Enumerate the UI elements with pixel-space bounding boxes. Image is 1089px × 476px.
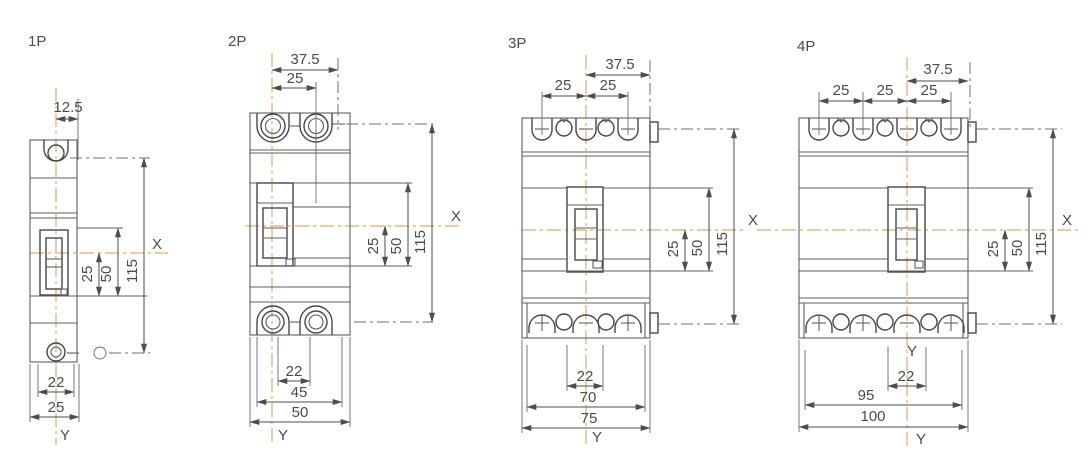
toggle-handle (46, 238, 62, 289)
bottom-terminal-hole-right (305, 311, 327, 333)
y-axis-label: Y (278, 427, 288, 444)
bottom-phase-barrier-hole-1 (833, 314, 849, 330)
dimension-pitch-25-3: 25 (907, 82, 951, 135)
dimension-height-115: 115 (124, 158, 144, 353)
dimension-mount-37-5: 37.5 (586, 56, 650, 75)
dim-50: 50 (1009, 240, 1026, 257)
dim-115: 115 (714, 232, 731, 256)
dim-25a: 25 (833, 82, 850, 99)
x-axis-label: X (152, 236, 162, 253)
pole-label-1p: 1P (28, 33, 46, 50)
dim-25a: 25 (555, 77, 572, 94)
bottom-phase-barrier-hole-1 (556, 314, 572, 330)
dimension-span-95: 95 (805, 350, 962, 410)
dimension-height-25: 25 (365, 226, 385, 266)
side-tab-bottom (968, 313, 976, 333)
y-axis-label: Y (592, 429, 602, 446)
dim-37-5: 37.5 (290, 51, 319, 68)
y-axis-label: Y (60, 427, 70, 444)
top-terminal-hole-left (261, 114, 285, 138)
dim-37-5: 37.5 (605, 56, 634, 73)
dim-115: 115 (1033, 232, 1050, 256)
dim-25v: 25 (985, 241, 1002, 258)
dimension-height-115: 115 (412, 124, 432, 322)
x-axis-label: X (748, 212, 758, 229)
x-axis-label: X (1062, 212, 1072, 229)
dimension-height-25: 25 (79, 253, 99, 296)
pole-label-4p: 4P (797, 38, 815, 55)
dimension-pitch-25-2: 25 (863, 82, 907, 135)
dim-25b: 25 (877, 82, 894, 99)
side-tab-top (968, 122, 976, 142)
axis-lines (650, 60, 740, 324)
dim-50: 50 (388, 238, 405, 255)
dim-50: 50 (689, 240, 706, 257)
dimension-pitch-25-right: 25 (586, 77, 628, 135)
y-axis-label: Y (916, 431, 926, 448)
dimension-height-50: 50 (98, 228, 118, 296)
bottom-phase-barrier-hole-2 (598, 314, 614, 330)
escutcheon (40, 230, 68, 295)
axis-lines (331, 58, 433, 322)
dim-22: 22 (577, 368, 594, 385)
breaker-body (250, 113, 412, 335)
dimension-height-115: 115 (714, 129, 734, 324)
dim-25p: 25 (287, 70, 304, 87)
dim-22: 22 (898, 368, 915, 385)
breaker-body (30, 140, 77, 362)
dimension-slot-22: 22 (567, 345, 603, 391)
dim-22: 22 (286, 363, 303, 380)
dim-75: 75 (581, 410, 598, 427)
dimension-height-115: 115 (1033, 129, 1053, 324)
dim-37-5: 37.5 (923, 61, 952, 78)
dim-115: 115 (124, 259, 141, 283)
indicator-window (593, 261, 602, 268)
dimension-mount-37-5: 37.5 (272, 51, 338, 70)
dim-25w: 25 (48, 399, 65, 416)
y-axis-label-mid: Y (907, 343, 917, 360)
drawing-4p: 4P (757, 38, 1080, 448)
dim-115: 115 (412, 230, 429, 254)
breaker-dimension-diagram: 1P (0, 0, 1089, 476)
pole-label-3p: 3P (508, 35, 526, 52)
axis-lines (970, 62, 1062, 324)
dimension-width-100: 100 (799, 340, 968, 432)
dimension-slot-22: 22 (278, 337, 310, 386)
drawing-2p: 2P (228, 33, 463, 445)
side-tab-top (650, 122, 658, 142)
dimension-width-25: 25 (30, 364, 79, 422)
dim-70: 70 (580, 389, 597, 406)
dim-25v: 25 (365, 238, 382, 255)
mounting-hole-symbol (94, 347, 106, 359)
toggle-handle (263, 208, 287, 258)
dim-25v: 25 (665, 241, 682, 258)
breaker-body (522, 118, 713, 338)
dimension-height-25: 25 (985, 230, 1005, 271)
dimension-width-50: 50 (250, 337, 350, 427)
breaker-body (799, 118, 1033, 338)
dimension-mount-37-5: 37.5 (907, 61, 968, 81)
dim-100: 100 (860, 408, 885, 425)
bottom-terminal-hole-left (262, 311, 284, 333)
dim-25v: 25 (79, 266, 96, 283)
dimension-pitch-25-left: 25 (542, 77, 586, 135)
x-axis-label: X (451, 208, 461, 225)
dimension-drawing-sheet: 1P (0, 0, 1089, 476)
dim-25c: 25 (921, 82, 938, 99)
pole-label-2p: 2P (228, 33, 246, 50)
indicator-window (915, 261, 923, 268)
dim-12-5: 12.5 (53, 99, 82, 116)
dim-25b: 25 (600, 77, 617, 94)
bottom-phase-barrier-hole-2 (877, 314, 893, 330)
drawing-1p: 1P (28, 33, 168, 445)
dim-50w: 50 (292, 404, 309, 421)
dim-50: 50 (98, 266, 115, 283)
dim-22: 22 (48, 374, 65, 391)
dimension-height-25: 25 (665, 230, 685, 271)
indicator-window (61, 289, 67, 295)
drawing-3p: 3P (508, 35, 758, 447)
bottom-phase-barrier-hole-3 (921, 314, 937, 330)
dimension-pitch-25-1: 25 (819, 82, 863, 135)
dim-95: 95 (858, 387, 875, 404)
dim-45: 45 (291, 384, 308, 401)
side-tab-bottom (650, 313, 658, 333)
dimension-height-50: 50 (388, 183, 408, 266)
